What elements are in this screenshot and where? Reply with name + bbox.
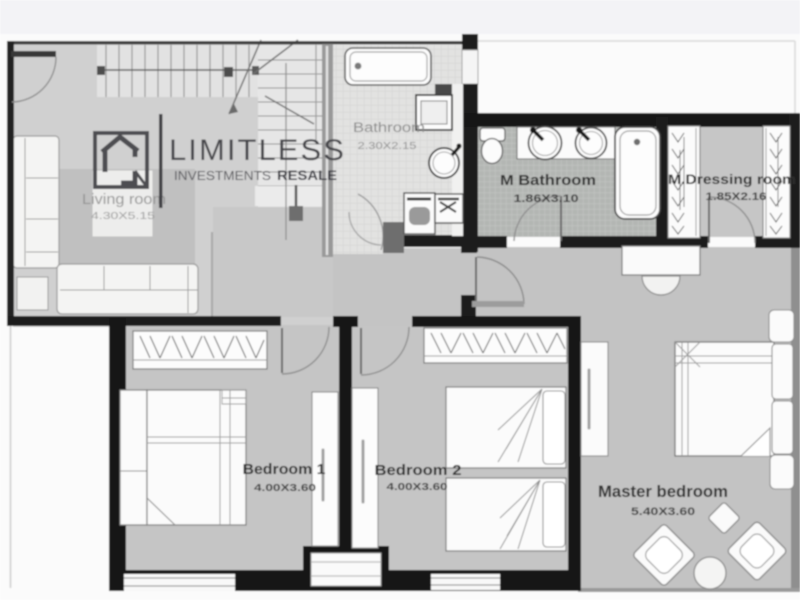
svg-text:4.30X5.15: 4.30X5.15 — [91, 210, 155, 222]
svg-text:1.86X3.10: 1.86X3.10 — [514, 193, 579, 205]
svg-text:M Bathroom: M Bathroom — [500, 172, 596, 189]
svg-text:5.40X3.60: 5.40X3.60 — [631, 506, 695, 518]
svg-text:Bedroom 1: Bedroom 1 — [243, 461, 326, 478]
svg-text:4.00X3.60: 4.00X3.60 — [254, 482, 316, 494]
svg-text:2.30X2.15: 2.30X2.15 — [358, 140, 417, 152]
svg-text:1.85X2.16: 1.85X2.16 — [706, 191, 767, 203]
svg-text:Bedroom 2: Bedroom 2 — [375, 462, 462, 479]
svg-text:INVESTMENTS: INVESTMENTS — [174, 168, 271, 183]
svg-text:Bathroom: Bathroom — [353, 120, 425, 135]
svg-text:Living room: Living room — [82, 192, 166, 208]
svg-text:LIMITLESS: LIMITLESS — [169, 134, 346, 167]
svg-text:M.Dressing room: M.Dressing room — [668, 171, 796, 187]
svg-text:RESALE: RESALE — [277, 168, 337, 183]
svg-text:Master bedroom: Master bedroom — [598, 483, 728, 501]
svg-text:4.00X3.60: 4.00X3.60 — [387, 481, 448, 493]
